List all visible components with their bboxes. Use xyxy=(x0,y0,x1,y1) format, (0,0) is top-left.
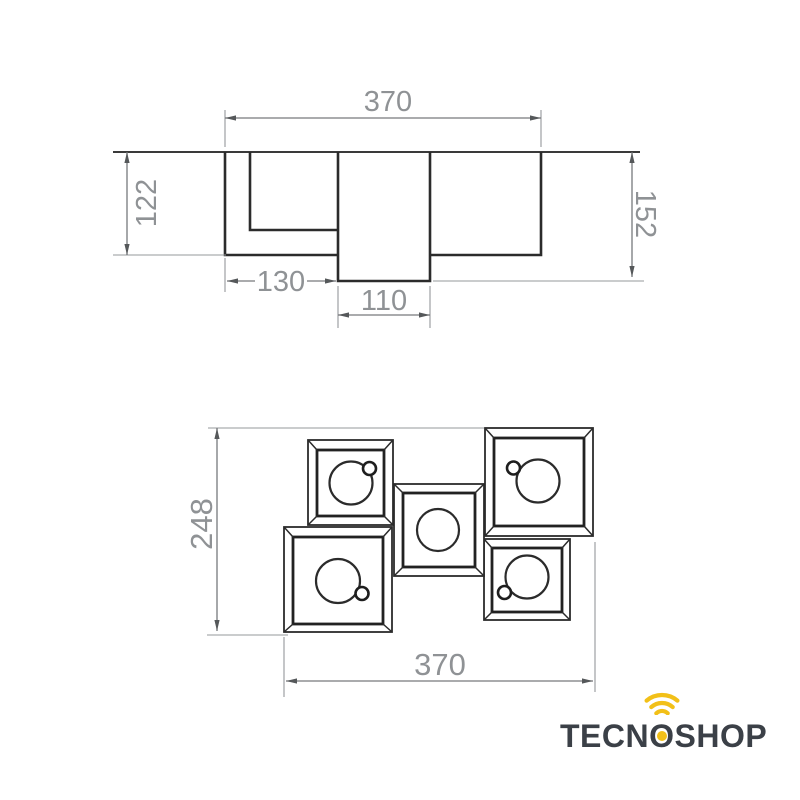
spotlight-module-center xyxy=(394,484,484,576)
adjust-knob xyxy=(356,587,369,600)
adjust-knob xyxy=(498,586,511,599)
product-dimension-image: 370 122 152 xyxy=(0,0,800,800)
fixture-profile-outline xyxy=(225,152,541,281)
dimension-drawing: 370 122 152 xyxy=(0,0,800,800)
logo-o-dot xyxy=(657,731,667,741)
plan-view-drawing: 248 370 xyxy=(184,428,595,697)
lamp-circle xyxy=(517,460,560,503)
logo-text-suffix: SHOP xyxy=(675,718,768,754)
dimension-label-height-left: 122 xyxy=(131,179,163,227)
spotlight-module-top-left xyxy=(308,440,393,525)
dimension-width-top: 370 xyxy=(225,86,541,147)
logo-o: O xyxy=(649,714,674,758)
lamp-circle xyxy=(417,509,459,551)
dimension-canopy-width: 110 xyxy=(338,285,430,328)
wifi-signal-icon xyxy=(640,681,684,715)
lamp-circle xyxy=(316,559,360,603)
adjust-knob xyxy=(363,462,376,475)
dimension-label-left-section: 130 xyxy=(257,266,305,298)
dimension-label-width-top: 370 xyxy=(364,86,412,118)
spotlight-module-top-right xyxy=(485,428,593,536)
dimension-label-canopy-width: 110 xyxy=(361,285,407,317)
dimension-label-height-right: 152 xyxy=(629,190,661,238)
dimension-height-right: 152 xyxy=(433,152,661,281)
logo-text-prefix: TECN xyxy=(560,718,649,754)
logo-wordmark: TECNO SHOP xyxy=(560,714,767,758)
dimension-left-section: 130 xyxy=(225,258,336,298)
adjust-knob xyxy=(507,462,520,475)
side-view-drawing: 370 122 152 xyxy=(113,86,661,328)
dimension-height-left: 122 xyxy=(113,152,226,255)
tecnoshop-logo: TECNO SHOP xyxy=(560,714,767,758)
spotlight-module-bottom-right xyxy=(484,539,570,620)
dimension-label-plan-width: 370 xyxy=(414,647,466,682)
dimension-label-plan-height: 248 xyxy=(184,498,219,550)
spotlight-module-bottom-left xyxy=(284,527,392,632)
